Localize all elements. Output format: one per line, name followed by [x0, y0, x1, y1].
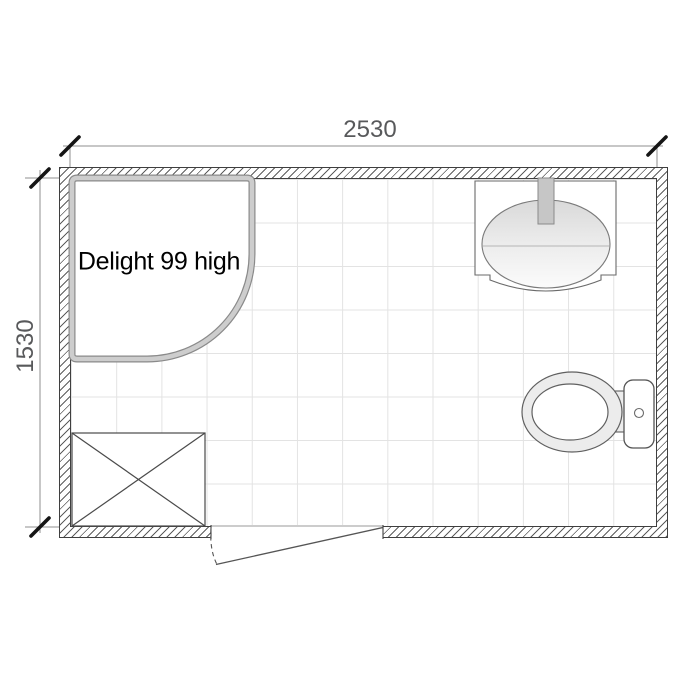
door-opening — [211, 525, 383, 540]
shower-model-label: Delight 99 high — [78, 248, 240, 277]
tick-mark — [648, 137, 666, 155]
bathroom-floor-plan: 2530 1530 Delight 99 high — [0, 0, 700, 700]
height-dimension-label: 1530 — [14, 319, 38, 372]
tick-mark — [31, 518, 49, 536]
width-dimension-label: 2530 — [343, 118, 396, 142]
tile-grid-floor — [70, 178, 657, 527]
tick-mark — [61, 137, 79, 155]
tick-mark — [31, 169, 49, 187]
